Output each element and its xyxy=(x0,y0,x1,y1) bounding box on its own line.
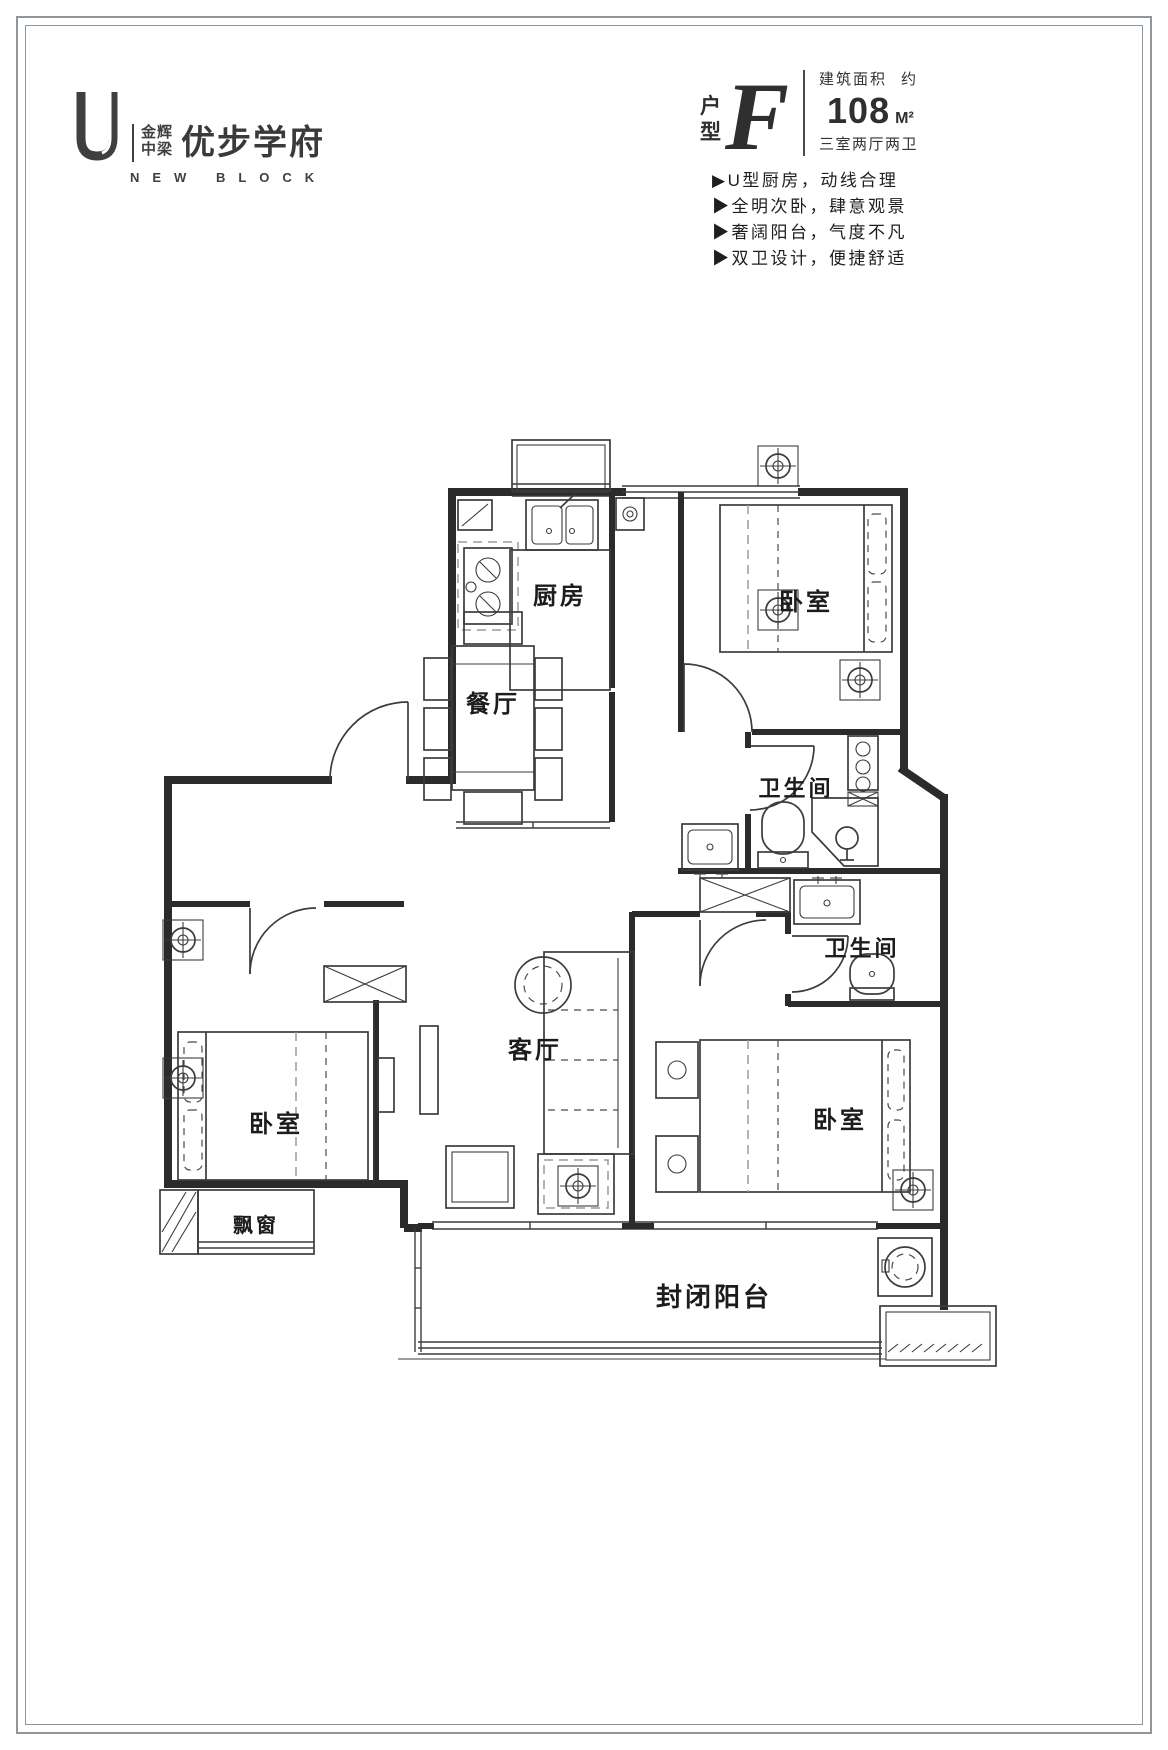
nightstand xyxy=(656,1136,698,1192)
sofa xyxy=(538,952,634,1214)
sink-icon xyxy=(794,876,860,924)
column-marker-icon xyxy=(758,446,798,486)
shaft-boxes xyxy=(324,792,878,1002)
room-label-dining: 餐厅 xyxy=(466,691,520,718)
room-label-living: 客厅 xyxy=(508,1036,562,1064)
column-marker-icon xyxy=(558,1166,598,1206)
column-marker-icon xyxy=(893,1170,933,1210)
kitchen-sink-icon xyxy=(526,494,598,550)
armchair xyxy=(446,1146,514,1208)
bedroom-right-furniture xyxy=(656,1040,910,1192)
ceiling-lamp-icon xyxy=(515,957,571,1013)
bath1-fixtures xyxy=(682,736,878,878)
balcony-fixtures xyxy=(878,1238,996,1366)
room-label-balcony: 封闭阳台 xyxy=(656,1282,772,1312)
washing-machine-icon xyxy=(878,1238,932,1296)
room-labels: 厨房 卧室 卫生间 餐厅 客厅 卧室 卧室 卫生间 飘窗 封闭阳台 xyxy=(233,582,900,1312)
dining-furniture xyxy=(424,612,562,824)
stove-icon xyxy=(458,542,518,630)
room-label-bath1: 卫生间 xyxy=(758,776,833,801)
planter-box xyxy=(880,1306,996,1366)
nightstand xyxy=(656,1042,698,1098)
bedroom-left-furniture xyxy=(178,1032,368,1180)
room-label-bedroom-right: 卧室 xyxy=(813,1106,867,1134)
floorplan-drawing: 厨房 卧室 卫生间 餐厅 客厅 卧室 卧室 卫生间 飘窗 封闭阳台 xyxy=(0,0,1168,1750)
living-furniture xyxy=(374,952,634,1214)
bath-cabinet-icon xyxy=(848,736,878,791)
kitchen-vent-icon xyxy=(616,498,644,530)
room-label-kitchen: 厨房 xyxy=(533,582,587,610)
shower-icon xyxy=(812,798,878,866)
tv-cabinet xyxy=(374,1004,438,1184)
room-label-bay-window: 飘窗 xyxy=(233,1213,279,1237)
floorplan-page: 金辉 中梁 优步学府 NEW BLOCK 户 型 F 建筑面积 约 108 M²… xyxy=(0,0,1168,1750)
room-label-bedroom-top: 卧室 xyxy=(779,588,833,616)
room-label-bedroom-left: 卧室 xyxy=(249,1110,303,1138)
vanity-sink-icon xyxy=(682,824,738,878)
column-marker-icon xyxy=(840,660,880,700)
bedroom-top-furniture xyxy=(720,505,892,652)
toilet-icon xyxy=(758,802,808,868)
room-label-bath2: 卫生间 xyxy=(824,936,899,961)
